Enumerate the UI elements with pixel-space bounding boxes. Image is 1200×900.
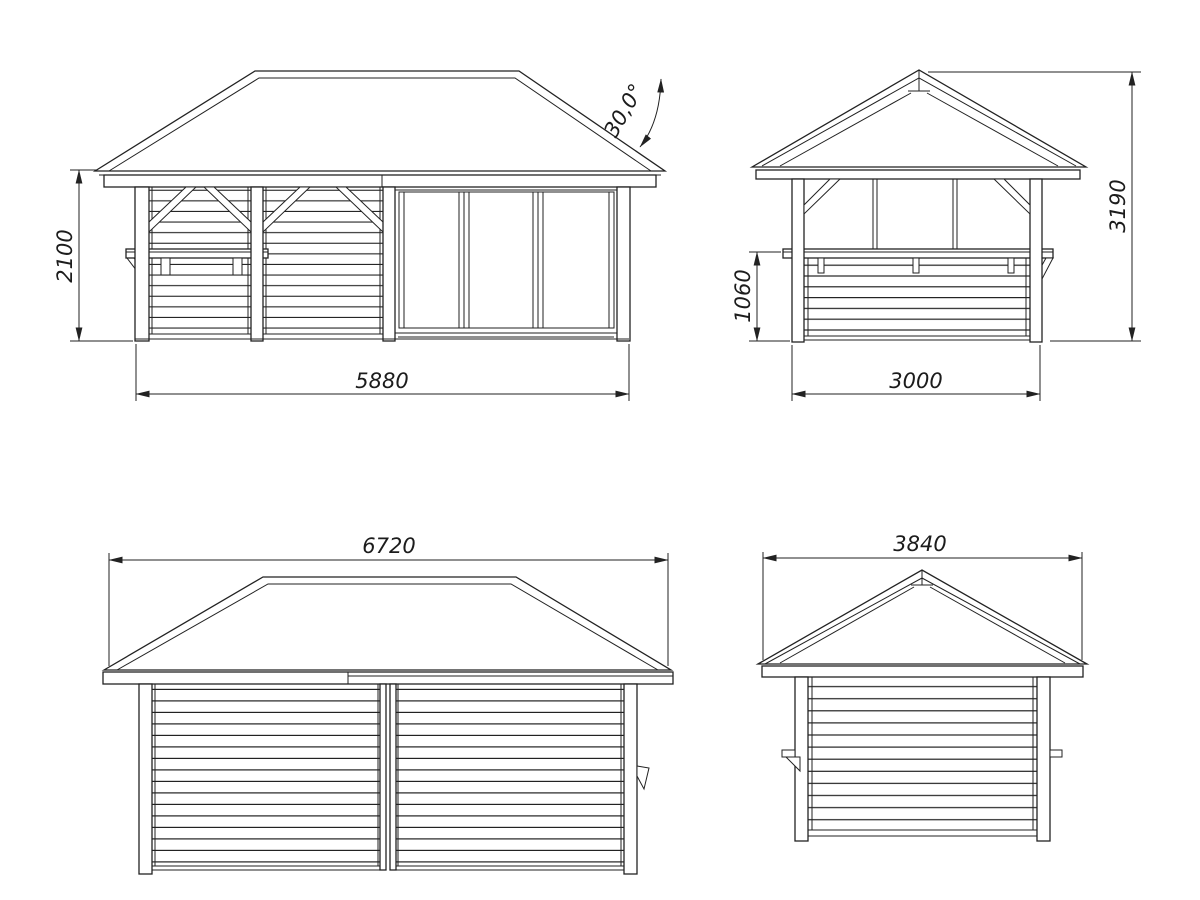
side-total-height-dimension-label: 3190 <box>1106 179 1130 232</box>
technical-drawing-sheet: 2100 5880 30,0° <box>0 0 1200 900</box>
opp-slat-panel <box>808 677 1037 836</box>
side-fascia <box>756 170 1080 179</box>
front-height-dimension-label: 2100 <box>53 229 77 282</box>
rear-roof-width-dimension-label: 6720 <box>362 534 415 558</box>
gazebo-elevations-drawing: 2100 5880 30,0° <box>0 0 1200 900</box>
rear-slat-panel-right <box>395 684 624 870</box>
side-parapet-dimension-label: 1060 <box>731 269 755 322</box>
opp-fascia <box>762 666 1083 677</box>
rear-fascia <box>103 672 673 684</box>
front-width-dimension-label: 5880 <box>355 369 408 393</box>
front-fascia <box>104 175 656 187</box>
side-width-dimension-label: 3000 <box>889 369 942 393</box>
opp-roof-width-dimension-label: 3840 <box>893 532 946 556</box>
rear-slat-panel-left <box>152 684 381 870</box>
front-glazed-doors <box>395 190 617 337</box>
